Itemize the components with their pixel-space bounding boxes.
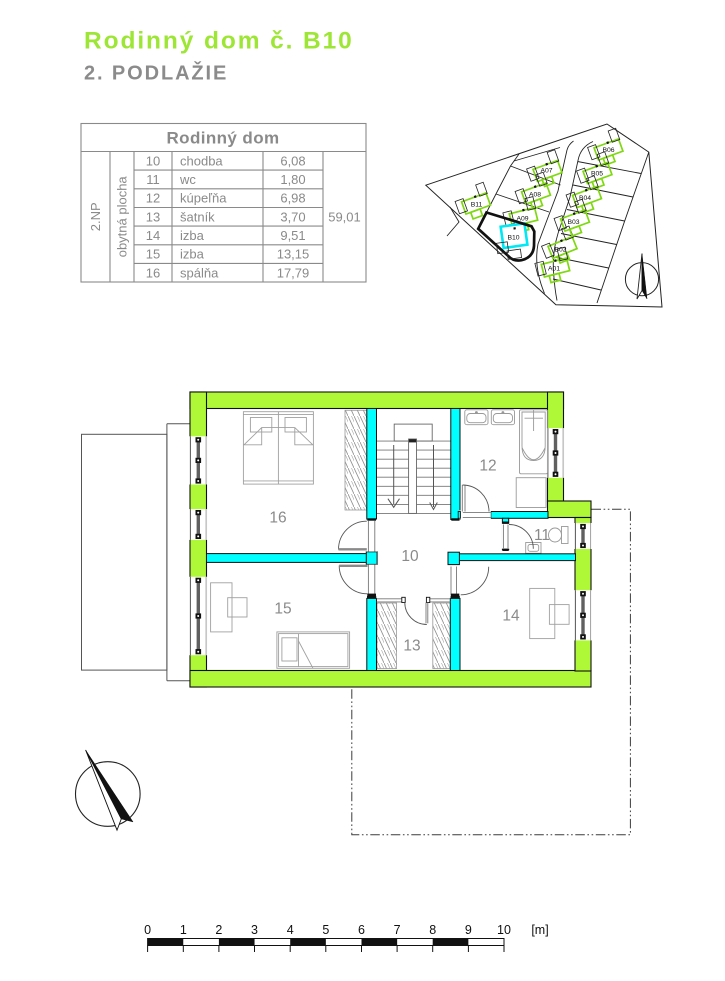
- svg-text:1: 1: [180, 923, 187, 937]
- svg-text:3,70: 3,70: [280, 209, 305, 224]
- svg-text:B02: B02: [554, 246, 566, 253]
- svg-text:12: 12: [479, 458, 496, 475]
- svg-text:Rodinný dom č. B10: Rodinný dom č. B10: [84, 28, 354, 55]
- svg-text:9: 9: [465, 923, 472, 937]
- svg-text:A09: A09: [516, 215, 528, 222]
- svg-text:B04: B04: [579, 195, 591, 202]
- svg-text:14: 14: [146, 228, 160, 243]
- svg-text:9,51: 9,51: [280, 228, 305, 243]
- svg-text:13,15: 13,15: [277, 247, 310, 262]
- svg-text:obytná plocha: obytná plocha: [115, 176, 130, 258]
- svg-text:8: 8: [429, 923, 436, 937]
- svg-text:spálňa: spálňa: [180, 265, 219, 280]
- svg-text:17,79: 17,79: [277, 265, 310, 280]
- svg-text:chodba: chodba: [180, 153, 223, 168]
- svg-text:A01: A01: [548, 265, 560, 272]
- svg-text:2.NP: 2.NP: [88, 202, 103, 231]
- svg-text:11: 11: [146, 172, 160, 187]
- svg-text:2. PODLAŽIE: 2. PODLAŽIE: [84, 60, 228, 84]
- svg-text:10: 10: [401, 548, 419, 565]
- svg-text:16: 16: [146, 265, 160, 280]
- svg-text:B05: B05: [591, 170, 603, 177]
- svg-text:59,01: 59,01: [328, 209, 361, 224]
- svg-text:15: 15: [274, 601, 291, 618]
- svg-text:4: 4: [287, 923, 294, 937]
- svg-text:[m]: [m]: [531, 923, 548, 937]
- svg-text:2: 2: [215, 923, 222, 937]
- svg-text:12: 12: [146, 191, 160, 206]
- svg-text:A07: A07: [540, 167, 552, 174]
- svg-text:Rodinný dom: Rodinný dom: [167, 129, 280, 148]
- svg-text:15: 15: [146, 247, 160, 262]
- svg-text:wc: wc: [179, 172, 196, 187]
- svg-text:0: 0: [144, 923, 151, 937]
- svg-text:13: 13: [403, 638, 420, 655]
- svg-text:11: 11: [534, 527, 550, 544]
- svg-text:5: 5: [322, 923, 329, 937]
- svg-text:10: 10: [146, 153, 160, 168]
- svg-text:10: 10: [497, 923, 511, 937]
- svg-text:6,08: 6,08: [280, 153, 305, 168]
- svg-text:B11: B11: [471, 201, 483, 208]
- svg-text:kúpeľňa: kúpeľňa: [180, 191, 227, 206]
- svg-text:A08: A08: [529, 191, 541, 198]
- svg-text:3: 3: [251, 923, 258, 937]
- svg-text:7: 7: [394, 923, 401, 937]
- svg-text:B06: B06: [602, 147, 614, 154]
- svg-text:izba: izba: [180, 247, 205, 262]
- svg-text:izba: izba: [180, 228, 205, 243]
- svg-text:B10: B10: [507, 234, 519, 241]
- svg-text:14: 14: [502, 608, 520, 625]
- svg-text:13: 13: [146, 209, 160, 224]
- svg-text:16: 16: [269, 510, 286, 527]
- svg-text:6: 6: [358, 923, 365, 937]
- svg-text:6,98: 6,98: [280, 191, 305, 206]
- svg-text:1,80: 1,80: [280, 172, 305, 187]
- svg-text:šatník: šatník: [180, 209, 215, 224]
- svg-text:B03: B03: [567, 219, 579, 226]
